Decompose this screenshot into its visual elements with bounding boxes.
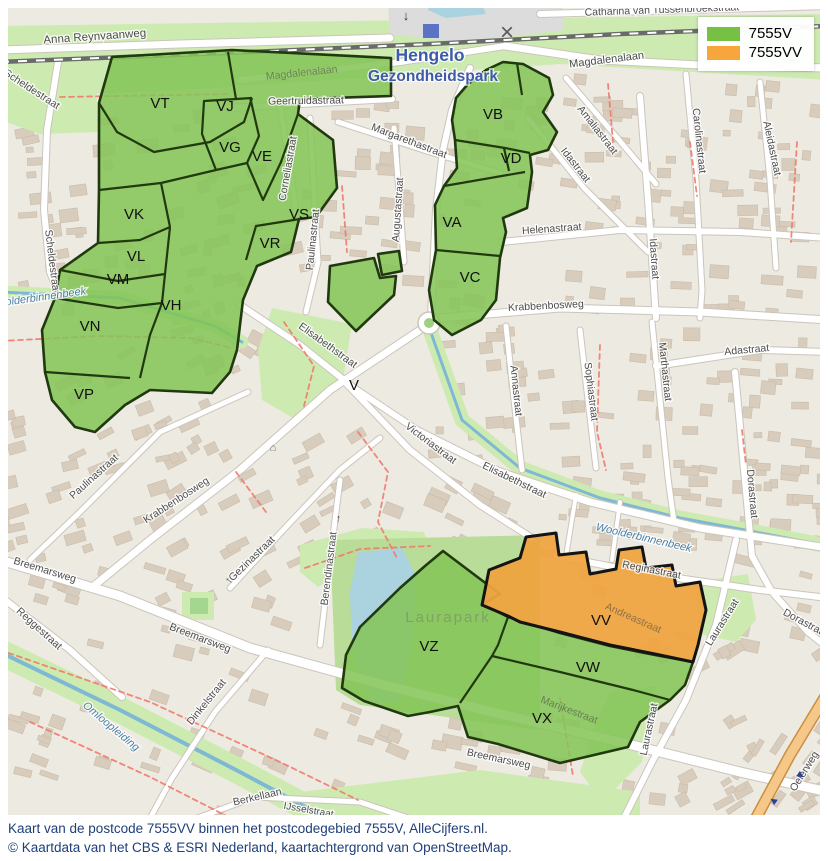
region-label-vj: VJ — [216, 98, 234, 115]
oneway-arrow-icon: ↓ — [403, 8, 410, 23]
region-label-vc: VC — [460, 269, 481, 286]
region-label-vx: VX — [532, 710, 552, 727]
region-label-vg: VG — [219, 139, 241, 156]
region-label-vt: VT — [150, 95, 169, 112]
caption: Kaart van de postcode 7555VV binnen het … — [8, 815, 824, 861]
region-label-vl: VL — [127, 248, 145, 265]
region-label-vd: VD — [501, 150, 522, 167]
legend-label-7555v: 7555V — [749, 26, 792, 41]
region-label-vp: VP — [74, 386, 94, 403]
region-label-va: VA — [443, 214, 462, 231]
region-label-vb: VB — [483, 106, 503, 123]
legend-item-7555vv: 7555VV — [707, 45, 802, 60]
region-label-vk: VK — [124, 206, 144, 223]
legend-label-7555vv: 7555VV — [749, 45, 802, 60]
map-canvas[interactable]: Anna ReynvaanwegCatharina van Tussenbroe… — [8, 8, 820, 815]
page: Anna ReynvaanwegCatharina van Tussenbroe… — [0, 0, 828, 861]
region-label-vm: VM — [107, 271, 130, 288]
shelter-icon: ⌂ — [270, 442, 277, 454]
legend-swatch-green — [707, 27, 740, 41]
region-label-v: V — [349, 377, 359, 394]
region-label-vw: VW — [576, 659, 601, 676]
region-label-ve: VE — [252, 148, 272, 165]
station-building — [423, 24, 439, 38]
postcode-region-wedge-north — [378, 251, 402, 275]
region-label-vh: VH — [161, 297, 182, 314]
city-label: Hengelo — [395, 45, 464, 65]
oneway-arrow-icon: ↑ — [335, 513, 342, 525]
district-label: Gezondheidspark — [368, 68, 498, 85]
park-label: Laurapark — [405, 609, 491, 626]
legend-item-7555v: 7555V — [707, 26, 802, 41]
legend-swatch-orange — [707, 46, 740, 60]
caption-line-2: © Kaartdata van het CBS & ESRI Nederland… — [8, 838, 824, 857]
region-label-vs: VS — [289, 206, 309, 223]
region-label-vv: VV — [591, 612, 611, 629]
street-label: Geertruidastraat — [268, 94, 344, 107]
caption-line-1: Kaart van de postcode 7555VV binnen het … — [8, 819, 824, 838]
railway-crossing-icon: × — [500, 19, 514, 46]
map-legend: 7555V 7555VV — [698, 17, 814, 71]
map-container[interactable]: Anna ReynvaanwegCatharina van Tussenbroe… — [8, 8, 820, 815]
region-label-vr: VR — [260, 235, 281, 252]
region-label-vn: VN — [80, 318, 101, 335]
region-label-vz: VZ — [419, 638, 438, 655]
